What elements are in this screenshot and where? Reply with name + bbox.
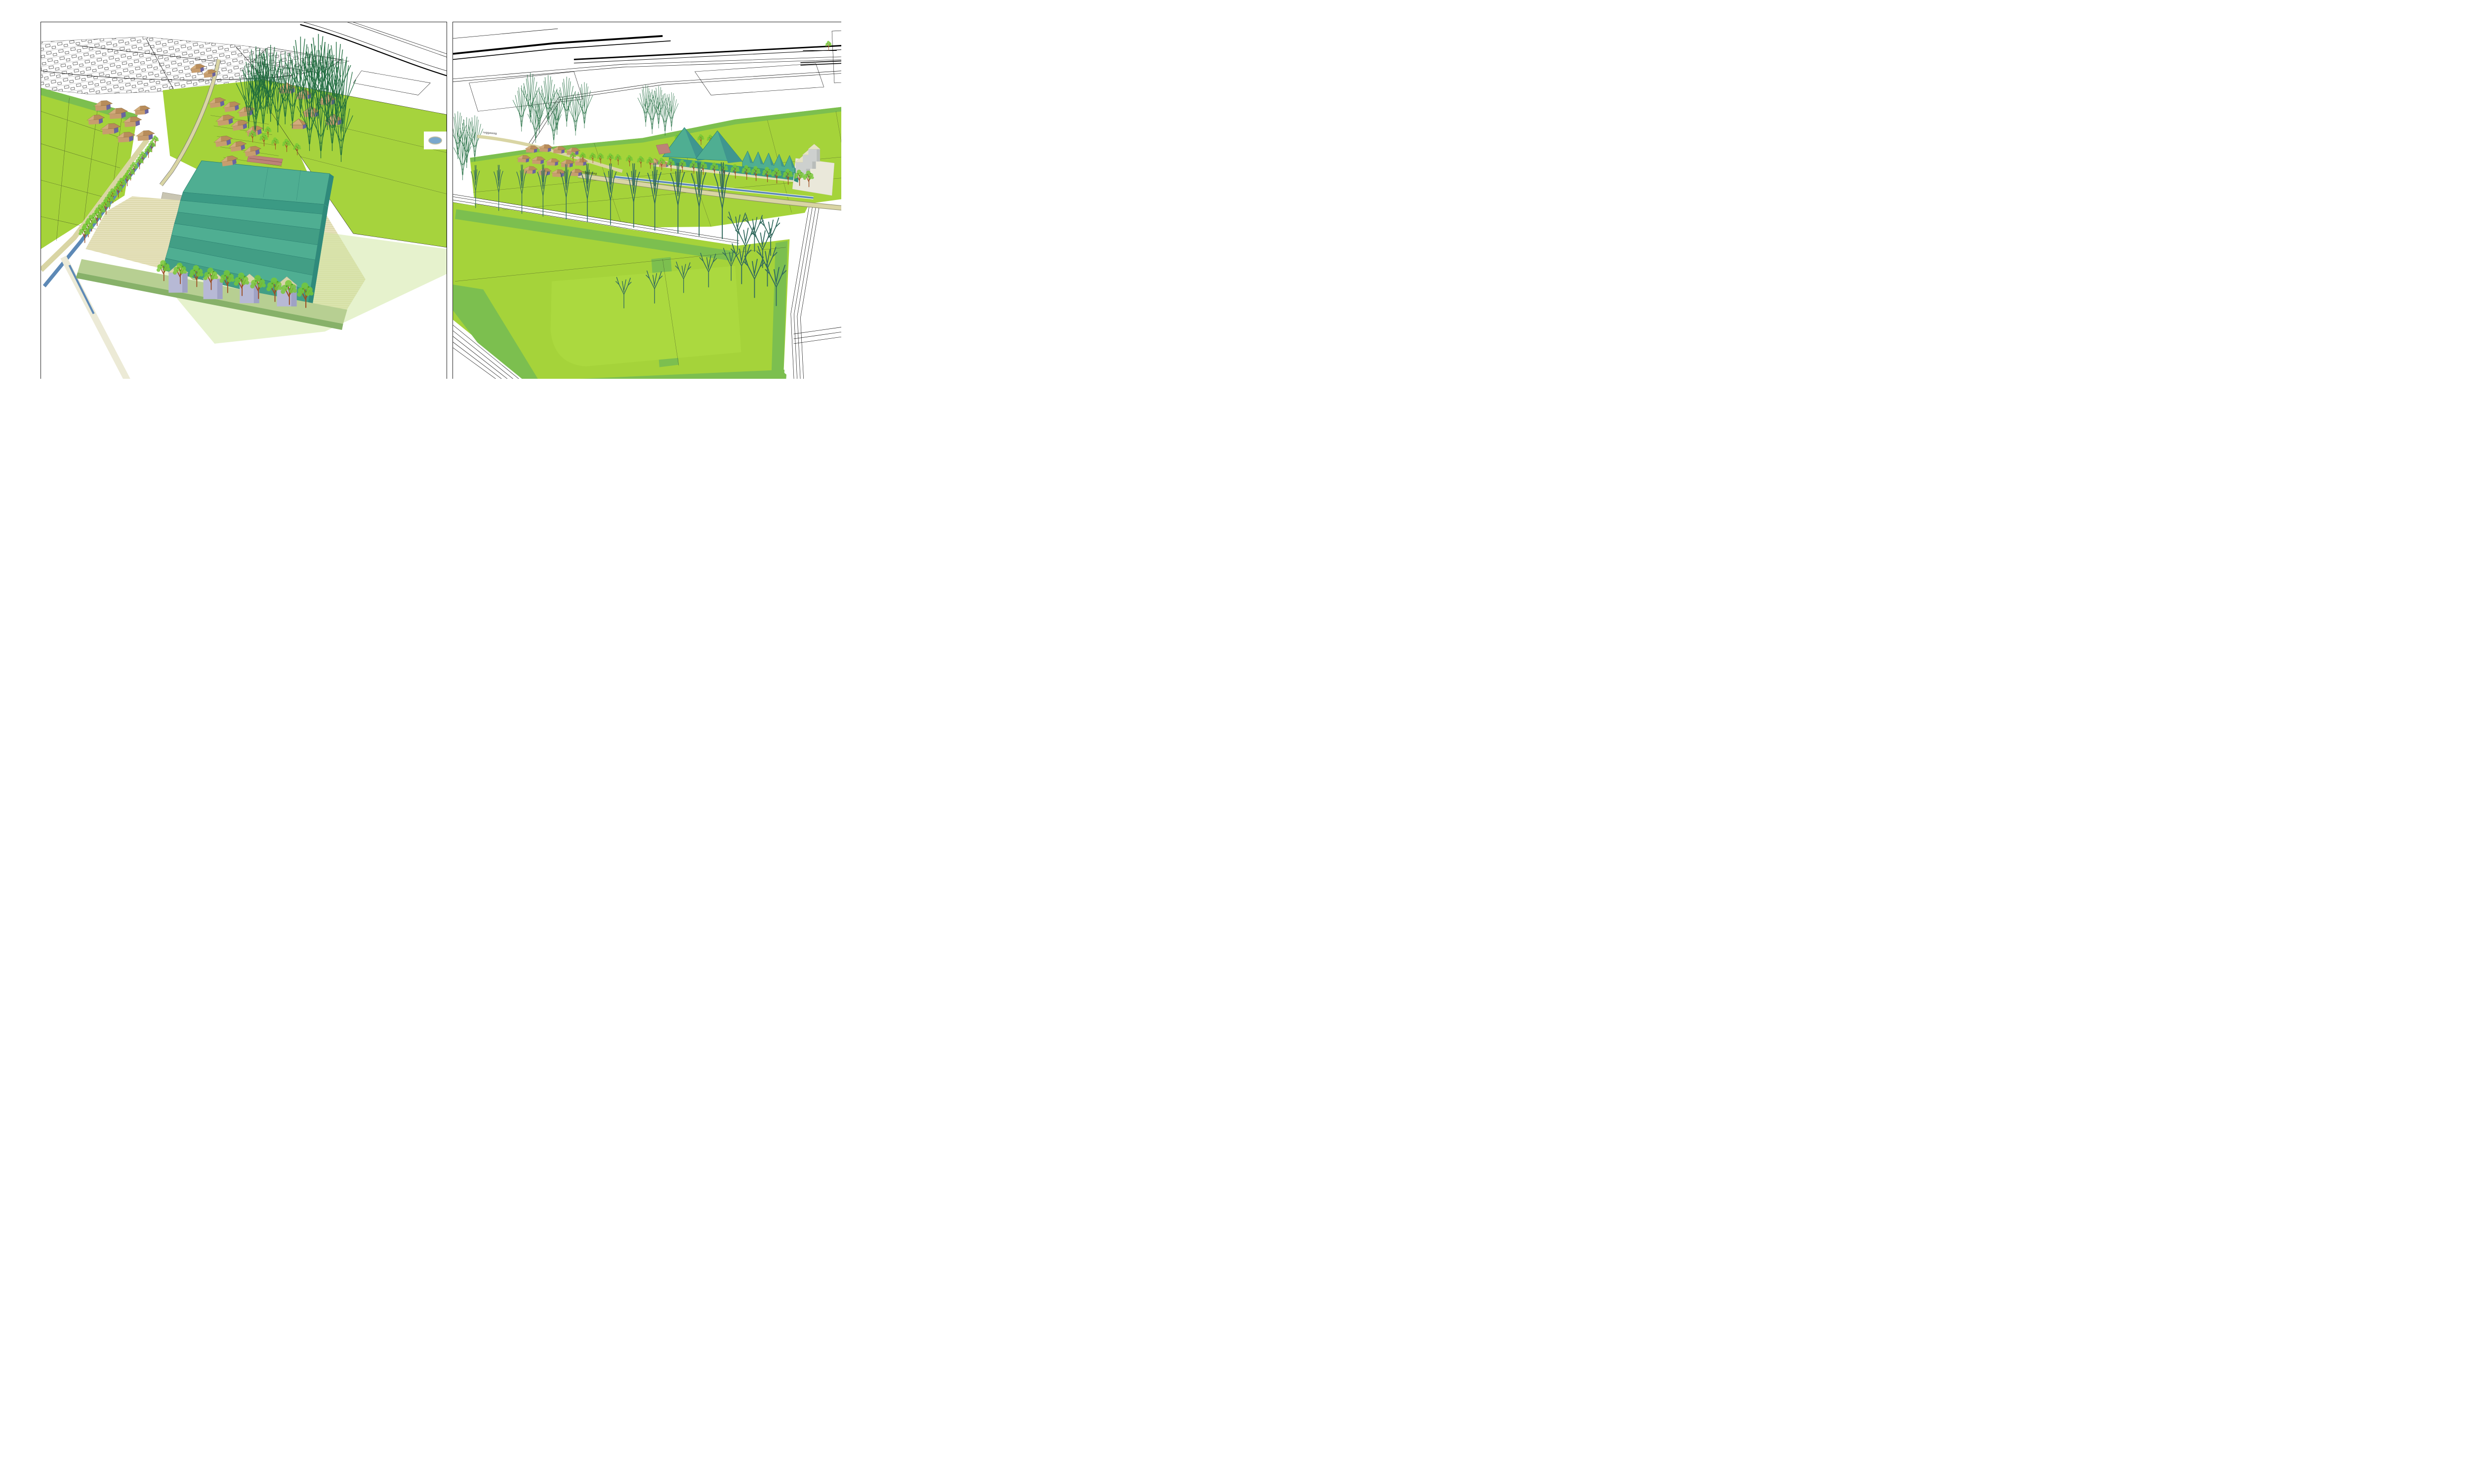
right-view-panel: roggeweg roggeweg (453, 22, 841, 379)
visualisation-pair: roggeweg roggeweg (20, 8, 841, 379)
bright-meadow-blob (550, 266, 741, 366)
poplar-tree (644, 89, 660, 134)
poplar-tree (568, 92, 583, 135)
right-view-rendering: roggeweg roggeweg (453, 22, 841, 379)
poplar-tree (513, 85, 530, 131)
left-view-panel (41, 22, 447, 379)
pond (429, 137, 442, 144)
house (133, 105, 150, 115)
poplar-tree (538, 75, 557, 125)
left-view-rendering (41, 22, 447, 379)
road-label-roggeweg: roggeweg (483, 131, 497, 135)
poplar-tree (466, 116, 483, 161)
house (538, 144, 553, 152)
lone-tree (825, 41, 832, 51)
poplar-tree (531, 88, 547, 133)
poplar-tree (664, 92, 679, 131)
road-corridor-right (784, 197, 841, 379)
